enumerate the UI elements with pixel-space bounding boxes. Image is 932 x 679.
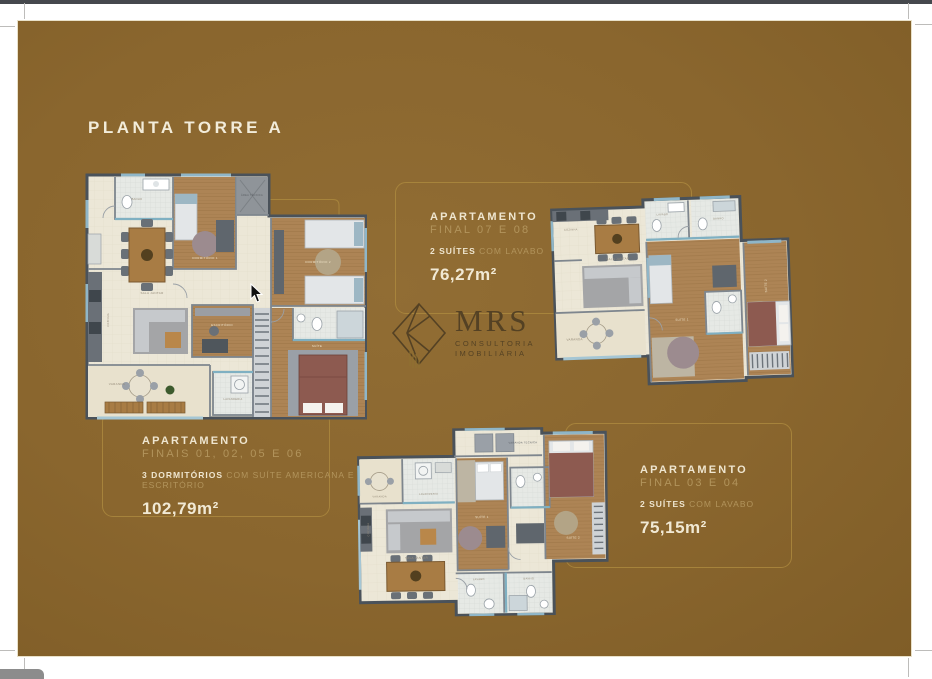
dining-table [594, 216, 640, 262]
apartment-feature-bold: 2 SUÍTES [430, 246, 476, 256]
floorplan-finais-01-02-05-06: SALA JANTAR DORMITÓRIO 1 DORMITÓRIO 2 SU… [85, 172, 367, 425]
room-label: SUÍTE 1 [475, 515, 489, 519]
mrs-logo: MRS CONSULTORIA IMOBILIÁRIA [390, 302, 535, 368]
mouse-cursor-icon [250, 283, 264, 304]
floorplan-final-03-04: VARANDA TÉCNICA VARANDA LAVANDERIA COZIN… [357, 426, 610, 617]
room-label: SALA JANTAR [405, 556, 429, 560]
crop-mark [0, 650, 15, 651]
page-title: PLANTA TORRE A [88, 118, 284, 138]
room-label: LAVABO [473, 577, 485, 581]
floorplan-final-07-08: SALA JANTAR COZINHA VARANDA LAVABO BANHO… [550, 193, 794, 389]
room-label: DORMITÓRIO 1 [192, 255, 218, 260]
crop-mark [0, 26, 15, 27]
room-label: COZINHA [366, 523, 370, 537]
room-banho-suite [705, 291, 742, 334]
kitchen-counter [360, 508, 373, 552]
dining-table [121, 219, 173, 291]
apartment-info-finais-01-02-05-06: APARTAMENTO FINAIS 01, 02, 05 E 06 3 DOR… [142, 435, 382, 519]
logo-subtitle-1: CONSULTORIA [455, 339, 535, 348]
logo-subtitle-2: IMOBILIÁRIA [455, 349, 535, 358]
room-label: BANHO [523, 576, 534, 580]
room-label: SUÍTE 2 [566, 536, 580, 540]
apartment-info-final-03-04: APARTAMENTO FINAL 03 E 04 2 SUÍTES COM L… [640, 464, 880, 538]
kitchen-counter [88, 272, 102, 362]
room-label: VARANDA [566, 337, 583, 342]
room-label: ESCRITÓRIO [211, 322, 233, 327]
apartment-feature: COM LAVABO [689, 499, 754, 509]
room-label: SUÍTE 1 [675, 317, 689, 321]
apartment-area: 75,15m² [640, 518, 880, 538]
apartment-heading: APARTAMENTO [640, 464, 880, 477]
apartment-units: FINAIS 01, 02, 05 E 06 [142, 448, 382, 461]
room-label: SALA JANTAR [140, 291, 164, 295]
room-label: VARANDA [109, 382, 125, 386]
crop-mark [24, 3, 25, 19]
brochure-page: PLANTA TORRE A MRS CONSULTORIA IMOBILIÁR… [18, 21, 911, 656]
apartment-area: 102,79m² [142, 499, 382, 519]
crop-mark [908, 3, 909, 19]
apartment-feature-bold: 2 SUÍTES [640, 499, 686, 509]
window-top-bar [0, 0, 932, 4]
room-label: ÁREA TÉCNICA [241, 194, 263, 197]
crop-mark [908, 658, 909, 677]
diamond-logo-icon [390, 302, 448, 368]
room-label: BANHO [713, 216, 724, 220]
taskbar-fragment [0, 669, 44, 679]
room-label: VARANDA [372, 494, 387, 498]
room-label: SUÍTE 2 [764, 279, 768, 293]
room-label: COZINHA [564, 227, 578, 231]
apartment-heading: APARTAMENTO [142, 435, 382, 448]
room-label: LAVANDERIA [223, 397, 242, 401]
room-label: DORMITÓRIO 2 [305, 259, 331, 264]
room-label: BANHO [132, 197, 143, 201]
room-label: COZINHA [106, 313, 110, 327]
apartment-feature-bold: 3 DORMITÓRIOS [142, 470, 223, 480]
room-label: SUÍTE [312, 344, 322, 348]
room-label: SALA JANTAR [606, 256, 630, 261]
crop-mark [915, 24, 932, 25]
apartment-units: FINAL 03 E 04 [640, 477, 880, 490]
apartment-feature: COM LAVABO [479, 246, 544, 256]
room-label: LAVABO [656, 212, 668, 216]
logo-name: MRS [455, 306, 535, 336]
crop-mark [915, 650, 932, 651]
room-label: LAVANDERIA [419, 492, 438, 496]
